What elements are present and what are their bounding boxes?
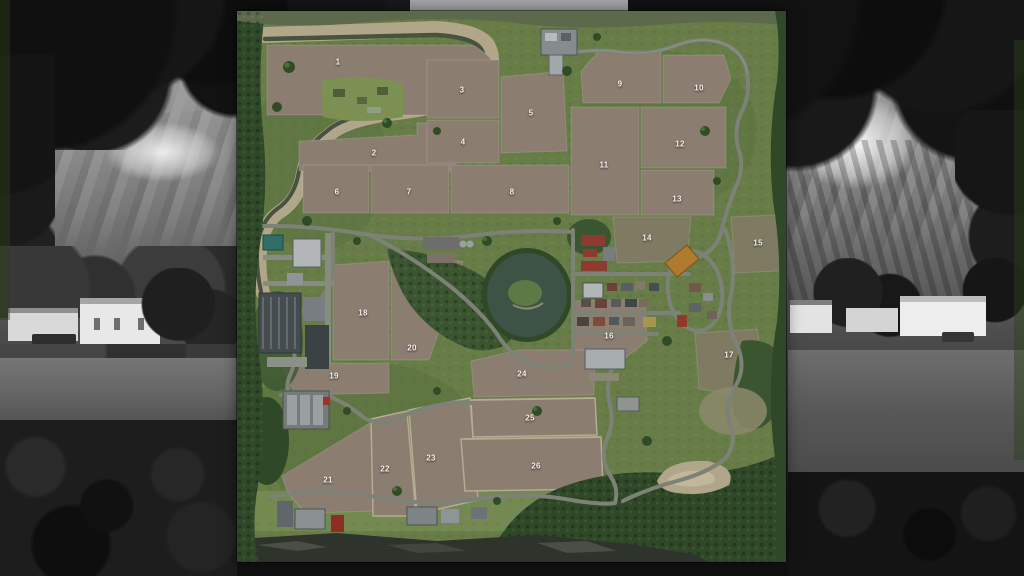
house-right-mid <box>846 308 898 332</box>
crop-foreground-left <box>0 420 237 576</box>
meadow-band-left <box>0 358 237 422</box>
parked-car-right <box>942 332 974 342</box>
pond <box>482 248 572 342</box>
farm-map-overview: 1234567891011121314151617181920212223242… <box>237 11 786 562</box>
parked-car-left <box>32 334 76 344</box>
field-hedge-left <box>0 344 237 358</box>
crop-foreground-right <box>788 472 1024 576</box>
field-shape-24 <box>471 350 595 397</box>
field-shape-12 <box>641 107 726 168</box>
field-shape-8 <box>451 165 569 213</box>
biogas-plant <box>283 391 330 429</box>
field-shape-15 <box>731 215 780 273</box>
field-shape-13 <box>641 170 714 215</box>
field-shape-3 <box>427 60 499 118</box>
field-shape-9 <box>581 51 661 103</box>
field-shape-5 <box>501 71 567 153</box>
field-shape-7 <box>371 165 449 213</box>
ruin-plot <box>321 77 403 121</box>
house-right <box>900 296 986 336</box>
field-shape-25 <box>471 398 597 437</box>
meadow-band-right <box>788 350 1024 486</box>
field-shape-4 <box>427 120 499 163</box>
field-shape-6 <box>303 165 369 213</box>
green-edge-right <box>1014 40 1024 460</box>
house-right-small <box>790 300 832 333</box>
field-shape-11 <box>571 107 639 215</box>
field-shape-10 <box>663 55 731 103</box>
green-edge-left <box>0 0 10 320</box>
map-canvas <box>237 11 786 562</box>
field-shape-18 <box>333 261 389 360</box>
